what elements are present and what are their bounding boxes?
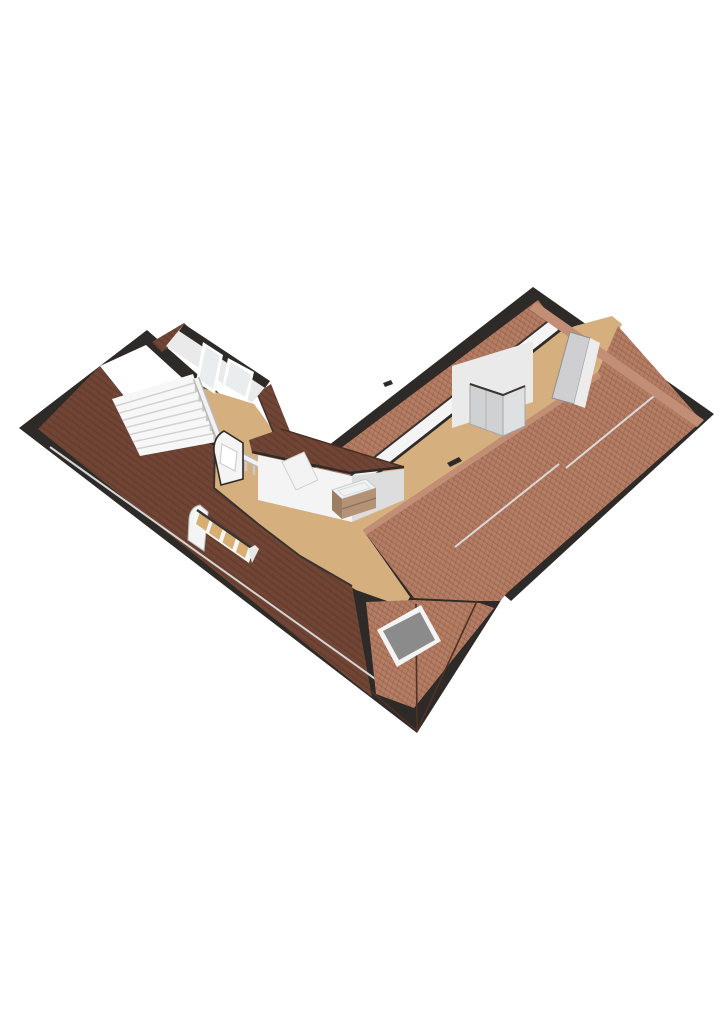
floorplan-canvas[interactable] (0, 0, 724, 1024)
floorplan-viewport (0, 0, 724, 1024)
